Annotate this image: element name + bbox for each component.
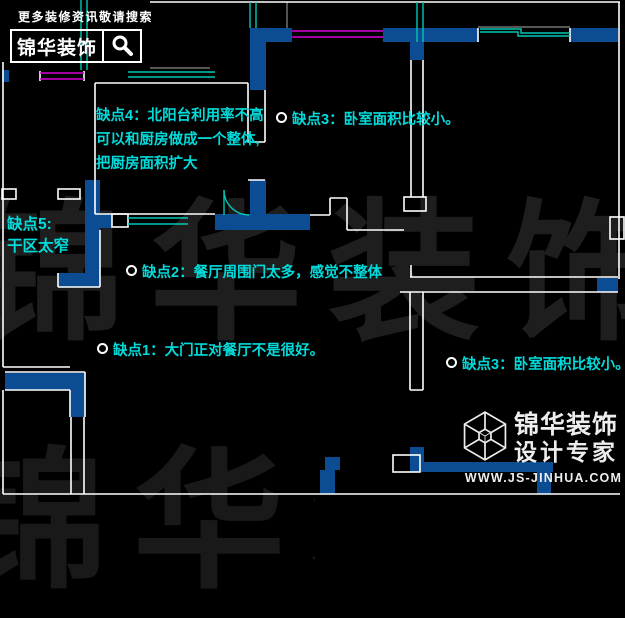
annotation-text: 缺点2：餐厅周围门太多，感觉不整体 (142, 265, 382, 281)
search-icon[interactable] (104, 31, 140, 61)
header-search-logo: 更多装修资讯敬请搜索 锦华装饰 (10, 8, 153, 63)
annotation-text: 缺点3：卧室面积比较小。 (462, 357, 625, 373)
annotation-line: 可以和厨房做成一个整体, (96, 128, 264, 152)
defect-marker-icon (446, 357, 457, 368)
gray-lines (150, 2, 570, 68)
search-tagline: 更多装修资讯敬请搜索 (10, 8, 153, 25)
annotation-line: 把厨房面积扩大 (96, 152, 264, 176)
annotation-defect5: 缺点5: 干区太窄 (7, 214, 69, 258)
annotation-text: 缺点3：卧室面积比较小。 (292, 112, 460, 128)
defect-marker-icon (276, 112, 287, 123)
door-arc (224, 190, 249, 215)
footer-brand: 锦华装饰 (514, 412, 618, 439)
defect-marker-icon (97, 343, 108, 354)
annotation-line: 缺点4：北阳台利用率不高 (96, 104, 264, 128)
annotation-line: 干区太窄 (7, 236, 69, 258)
annotation-text: 缺点1：大门正对餐厅不是很好。 (113, 343, 324, 359)
annotation-defect3-top: 缺点3：卧室面积比较小。 (276, 108, 460, 129)
cube-wireframe-icon (462, 410, 508, 467)
footer-url: WWW.JS-JINHUA.COM (462, 471, 625, 485)
annotation-defect4: 缺点4：北阳台利用率不高 可以和厨房做成一个整体, 把厨房面积扩大 (96, 104, 264, 176)
cad-floorplan-screenshot: { "header_logo": { "tagline": "更多装修资讯敬请搜… (0, 0, 625, 500)
annotation-defect3-bottom: 缺点3：卧室面积比较小。 (446, 353, 625, 374)
annotation-defect2: 缺点2：餐厅周围门太多，感觉不整体 (126, 261, 382, 282)
footer-company-logo: 锦华装饰 设计专家 WWW.JS-JINHUA.COM (462, 410, 625, 485)
annotation-defect1: 缺点1：大门正对餐厅不是很好。 (97, 339, 324, 360)
brand-name: 锦华装饰 (12, 31, 102, 61)
footer-subtitle: 设计专家 (514, 439, 618, 465)
annotation-line: 缺点5: (7, 214, 69, 236)
search-box[interactable]: 锦华装饰 (10, 29, 142, 63)
defect-marker-icon (126, 265, 137, 276)
